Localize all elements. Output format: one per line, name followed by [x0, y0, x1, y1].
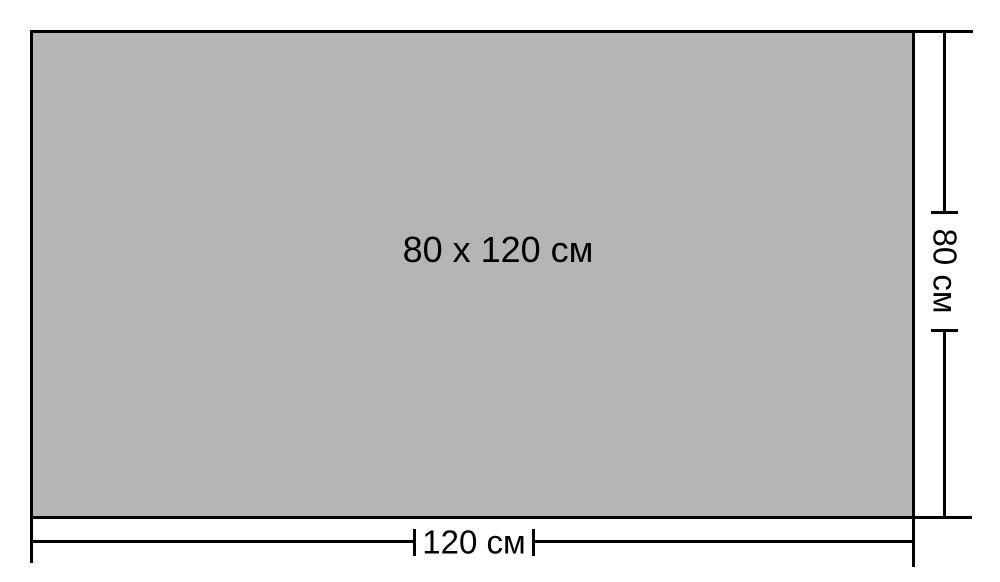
- width-dimension-tick-right: [532, 529, 535, 556]
- height-dimension-line-lower: [943, 329, 946, 518]
- width-dimension-tick-left: [413, 529, 416, 556]
- width-dimension-label: 120 см: [422, 526, 525, 559]
- width-dimension-line-right: [534, 540, 915, 543]
- height-dimension-tick-bottom: [931, 329, 958, 332]
- width-dimension-line-left: [30, 540, 414, 543]
- object-rectangle: [30, 30, 915, 519]
- height-dimension-line-upper: [943, 31, 946, 213]
- right-edge-extension-line: [912, 519, 915, 567]
- size-label: 80 x 120 см: [403, 232, 594, 268]
- diagram-canvas: 80 x 120 см 120 см 80 см: [0, 0, 1000, 582]
- height-dimension-tick-top: [931, 211, 958, 214]
- height-dimension-label: 80 см: [929, 228, 962, 313]
